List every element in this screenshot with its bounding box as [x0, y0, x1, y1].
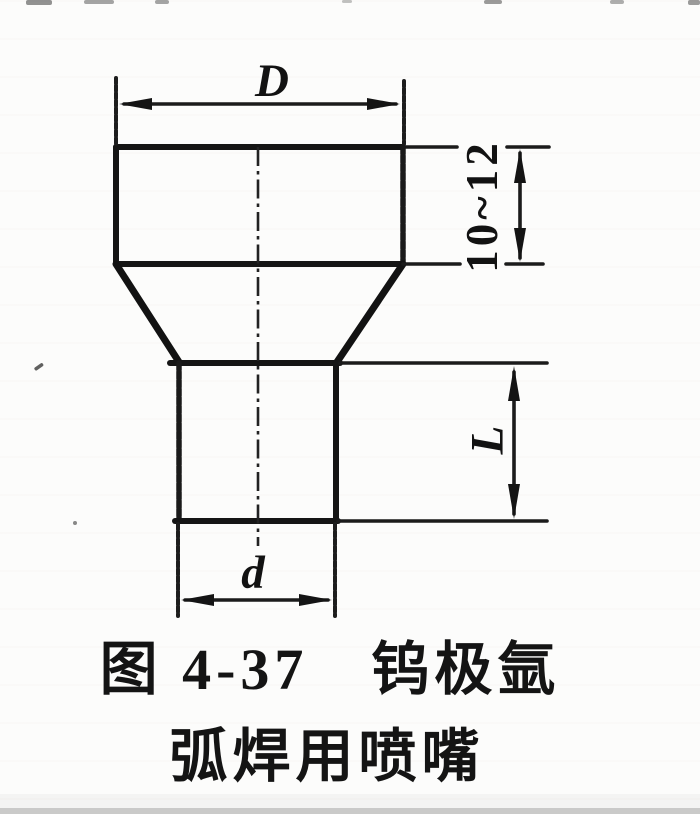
figure-caption: 图 4-37 钨极氩 弧焊用喷嘴 — [100, 637, 561, 789]
dimension-10-12: 10~12 — [403, 139, 549, 272]
arrowhead-up-icon — [508, 366, 520, 401]
nozzle-body — [116, 147, 403, 546]
dim-label-L: L — [461, 426, 513, 456]
scan-speck — [342, 0, 352, 3]
dimension-L: L — [338, 363, 547, 521]
dimension-d: d — [178, 524, 335, 616]
arrowhead-right-icon — [299, 594, 332, 606]
scan-bottom-edge — [0, 808, 700, 814]
arrowhead-down-icon — [514, 228, 526, 262]
scan-speck — [34, 362, 44, 371]
taper-left-edge — [116, 264, 179, 362]
arrowhead-down-icon — [508, 484, 520, 519]
taper-right-edge — [337, 264, 403, 362]
scan-speck — [26, 0, 52, 5]
arrowhead-left-icon — [181, 594, 214, 606]
scan-speck — [688, 0, 700, 5]
scan-speck — [155, 0, 169, 4]
arrowhead-up-icon — [514, 149, 526, 183]
caption-line-2: 弧焊用喷嘴 — [169, 724, 484, 789]
scan-speck — [73, 521, 77, 525]
caption-line-1: 图 4-37 钨极氩 — [100, 637, 561, 702]
arrowhead-right-icon — [367, 98, 400, 110]
scan-bottom-haze — [0, 794, 700, 808]
scan-speck — [484, 0, 502, 4]
arrowhead-left-icon — [119, 98, 152, 110]
scan-speck — [84, 0, 114, 4]
dim-label-D: D — [254, 55, 289, 107]
technical-drawing: D 10~12 L d — [0, 0, 700, 814]
scan-speck — [610, 0, 624, 4]
dimension-D: D — [116, 55, 404, 144]
dim-label-10-12: 10~12 — [457, 139, 507, 272]
scanned-page: D 10~12 L d — [0, 0, 700, 814]
dim-label-d: d — [241, 547, 266, 599]
